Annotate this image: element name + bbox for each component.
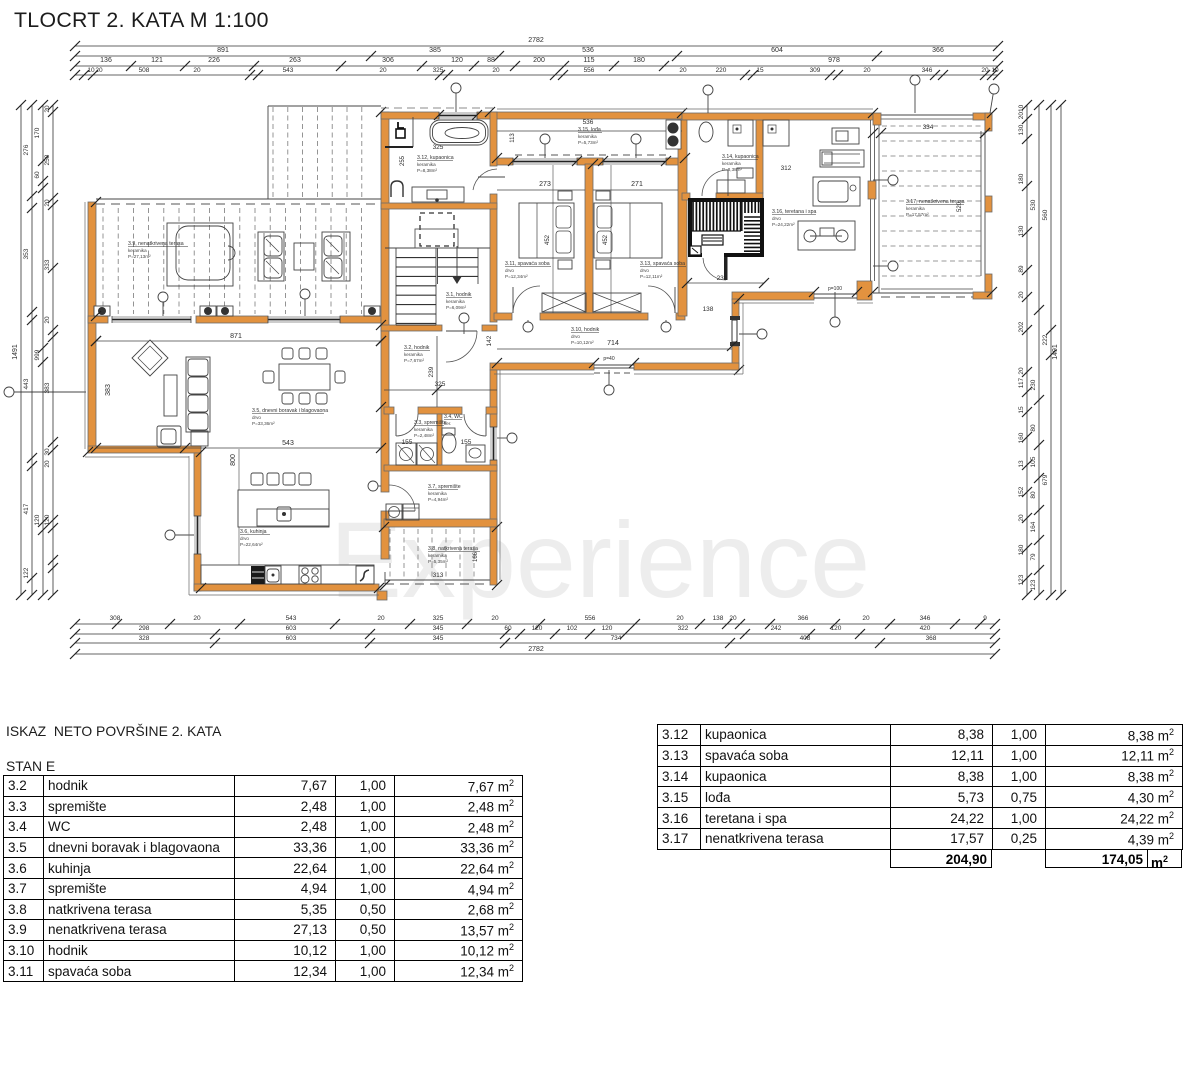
svg-text:drvo: drvo <box>640 268 649 273</box>
svg-text:222: 222 <box>1042 334 1049 345</box>
svg-text:P=4,94m²: P=4,94m² <box>428 497 449 502</box>
svg-text:543: 543 <box>283 67 294 74</box>
svg-text:383: 383 <box>105 384 112 396</box>
svg-text:130: 130 <box>1018 225 1025 236</box>
svg-text:353: 353 <box>23 248 30 259</box>
svg-text:271: 271 <box>631 181 643 188</box>
svg-text:239: 239 <box>428 366 435 377</box>
svg-text:3.4, WC: 3.4, WC <box>444 414 463 420</box>
svg-text:P=17,57m²: P=17,57m² <box>906 212 929 217</box>
svg-text:309: 309 <box>810 67 821 74</box>
svg-text:115: 115 <box>583 57 594 64</box>
svg-text:P=2,48m²: P=2,48m² <box>414 433 435 438</box>
svg-text:999: 999 <box>34 349 41 360</box>
svg-text:679: 679 <box>1042 474 1049 485</box>
svg-text:P=6,09m²: P=6,09m² <box>446 305 467 310</box>
svg-text:1491: 1491 <box>12 344 19 360</box>
svg-text:20: 20 <box>1018 514 1025 522</box>
svg-text:20: 20 <box>491 615 499 622</box>
svg-text:89: 89 <box>1018 265 1025 273</box>
svg-text:142: 142 <box>486 335 493 346</box>
svg-text:79: 79 <box>1030 553 1037 561</box>
svg-text:155: 155 <box>402 439 413 446</box>
svg-text:325: 325 <box>433 615 444 622</box>
svg-text:180: 180 <box>1018 173 1025 184</box>
svg-text:152: 152 <box>1018 486 1025 497</box>
svg-text:202: 202 <box>1018 321 1025 332</box>
svg-text:325: 325 <box>435 381 446 388</box>
svg-text:3.8, natkrivena terasa: 3.8, natkrivena terasa <box>428 546 478 552</box>
svg-text:123: 123 <box>1018 574 1025 585</box>
svg-text:20: 20 <box>193 67 201 74</box>
svg-text:166: 166 <box>473 551 479 562</box>
svg-text:604: 604 <box>771 47 783 54</box>
svg-text:P=33,36m²: P=33,36m² <box>252 421 275 426</box>
svg-text:273: 273 <box>539 181 551 188</box>
svg-text:3.10, hodnik: 3.10, hodnik <box>571 327 600 333</box>
svg-text:800: 800 <box>230 454 237 466</box>
svg-text:20: 20 <box>1018 367 1025 375</box>
svg-text:536: 536 <box>582 47 594 54</box>
svg-text:drvo: drvo <box>252 415 261 420</box>
svg-text:121: 121 <box>151 57 163 64</box>
svg-text:383: 383 <box>44 382 51 393</box>
svg-text:p=40: p=40 <box>603 356 614 362</box>
svg-text:328: 328 <box>139 635 150 642</box>
svg-text:20: 20 <box>862 615 870 622</box>
svg-text:366: 366 <box>932 47 944 54</box>
svg-text:452: 452 <box>603 234 609 245</box>
svg-text:220: 220 <box>716 67 727 74</box>
svg-text:200: 200 <box>533 57 545 64</box>
svg-text:105: 105 <box>1030 456 1037 467</box>
svg-text:20: 20 <box>44 105 51 113</box>
svg-text:276: 276 <box>23 144 30 155</box>
svg-text:322: 322 <box>678 625 689 632</box>
svg-text:122: 122 <box>23 567 30 578</box>
svg-text:123: 123 <box>1030 579 1037 590</box>
svg-text:P=5,35m²: P=5,35m² <box>428 559 449 564</box>
svg-text:226: 226 <box>208 57 220 64</box>
svg-text:417: 417 <box>23 503 30 514</box>
svg-text:603: 603 <box>286 635 297 642</box>
svg-text:113: 113 <box>510 133 516 143</box>
svg-text:180: 180 <box>1018 544 1025 555</box>
svg-text:20: 20 <box>377 615 385 622</box>
svg-text:306: 306 <box>382 57 394 64</box>
svg-text:120: 120 <box>34 514 41 525</box>
svg-text:3.2, hodnik: 3.2, hodnik <box>404 345 430 351</box>
svg-text:10: 10 <box>991 67 999 74</box>
svg-text:346: 346 <box>920 615 931 622</box>
svg-text:3.6, kuhinja: 3.6, kuhinja <box>240 529 267 535</box>
svg-text:P=5,73m²: P=5,73m² <box>578 140 599 145</box>
svg-text:drvo: drvo <box>571 334 580 339</box>
svg-text:80: 80 <box>1030 424 1037 432</box>
svg-text:230: 230 <box>1030 379 1037 390</box>
svg-text:560: 560 <box>1042 209 1049 220</box>
svg-text:Experience: Experience <box>330 499 870 620</box>
svg-text:325: 325 <box>433 67 444 74</box>
svg-text:drvo: drvo <box>505 268 514 273</box>
svg-text:3.17, nenatkrivena terasa: 3.17, nenatkrivena terasa <box>906 199 965 205</box>
svg-text:120: 120 <box>451 57 463 64</box>
svg-text:drvo: drvo <box>772 216 781 221</box>
svg-text:452: 452 <box>545 234 551 245</box>
svg-text:3.12, kupaonica: 3.12, kupaonica <box>417 155 454 161</box>
svg-text:P=7,67m²: P=7,67m² <box>404 358 425 363</box>
svg-text:1491: 1491 <box>1052 344 1059 360</box>
svg-text:60: 60 <box>34 171 41 179</box>
svg-text:ker.: ker. <box>444 421 451 426</box>
svg-text:420: 420 <box>920 625 931 632</box>
svg-text:3.15, lođa: 3.15, lođa <box>578 127 601 133</box>
svg-text:556: 556 <box>585 615 596 622</box>
svg-text:3.14, kupaonica: 3.14, kupaonica <box>722 154 759 160</box>
svg-text:keramika: keramika <box>722 161 741 166</box>
svg-text:keramika: keramika <box>128 248 147 253</box>
svg-text:543: 543 <box>282 440 294 447</box>
svg-text:P=27,13m²: P=27,13m² <box>128 254 151 259</box>
svg-text:136: 136 <box>100 57 112 64</box>
svg-text:978: 978 <box>828 57 840 64</box>
svg-text:keramika: keramika <box>417 162 436 167</box>
svg-text:298: 298 <box>139 625 150 632</box>
svg-text:255: 255 <box>400 155 406 166</box>
svg-text:871: 871 <box>230 333 242 340</box>
svg-text:556: 556 <box>584 67 595 74</box>
svg-text:drvo: drvo <box>240 536 249 541</box>
svg-text:180: 180 <box>633 57 645 64</box>
svg-text:3.7, spremište: 3.7, spremište <box>428 484 461 490</box>
svg-text:164: 164 <box>1030 521 1037 532</box>
svg-text:530: 530 <box>1030 199 1037 210</box>
svg-text:P=12,34m²: P=12,34m² <box>505 274 528 279</box>
svg-text:603: 603 <box>286 625 297 632</box>
svg-text:20: 20 <box>981 67 989 74</box>
svg-text:334: 334 <box>923 124 934 131</box>
svg-text:15: 15 <box>1018 406 1025 414</box>
svg-text:385: 385 <box>429 47 441 54</box>
svg-text:keramika: keramika <box>404 352 423 357</box>
svg-text:408: 408 <box>800 635 811 642</box>
svg-text:2782: 2782 <box>528 646 544 653</box>
svg-text:242: 242 <box>771 625 782 632</box>
svg-text:120: 120 <box>44 514 51 525</box>
svg-text:263: 263 <box>289 57 301 64</box>
svg-text:P=8,38m²: P=8,38m² <box>417 168 438 173</box>
svg-text:443: 443 <box>23 378 30 389</box>
svg-text:P=24,22m²: P=24,22m² <box>772 222 795 227</box>
svg-text:308: 308 <box>110 615 121 622</box>
svg-text:9: 9 <box>983 615 987 622</box>
svg-text:312: 312 <box>781 165 792 172</box>
svg-text:313: 313 <box>433 572 444 579</box>
svg-text:20: 20 <box>729 615 737 622</box>
svg-text:120: 120 <box>831 625 842 632</box>
svg-text:20: 20 <box>95 67 103 74</box>
svg-text:10: 10 <box>87 67 95 74</box>
svg-text:3.1, hodnik: 3.1, hodnik <box>446 292 472 298</box>
svg-text:P=22,64m²: P=22,64m² <box>240 542 263 547</box>
svg-text:333: 333 <box>44 259 51 270</box>
svg-text:160: 160 <box>1018 432 1025 443</box>
svg-text:170: 170 <box>34 127 41 138</box>
svg-text:120: 120 <box>532 625 543 632</box>
svg-text:3.9, nenatkrivena terasa: 3.9, nenatkrivena terasa <box>128 241 184 247</box>
svg-text:130: 130 <box>1018 124 1025 135</box>
svg-text:60: 60 <box>504 625 512 632</box>
svg-text:20: 20 <box>379 67 387 74</box>
svg-text:508: 508 <box>139 67 150 74</box>
svg-text:346: 346 <box>922 67 933 74</box>
svg-text:keramika: keramika <box>906 206 925 211</box>
svg-text:keramika: keramika <box>428 491 447 496</box>
svg-text:714: 714 <box>607 340 619 347</box>
svg-text:3.16, teretana i spa: 3.16, teretana i spa <box>772 209 817 215</box>
svg-text:88: 88 <box>487 57 495 64</box>
svg-text:138: 138 <box>703 306 714 313</box>
svg-text:3.5, dnevni boravak i blagovao: 3.5, dnevni boravak i blagovaona <box>252 408 328 414</box>
svg-text:3.3, spremište: 3.3, spremište <box>414 420 447 426</box>
svg-text:keramika: keramika <box>446 299 465 304</box>
svg-text:20: 20 <box>44 316 51 324</box>
svg-text:p=100: p=100 <box>828 286 842 292</box>
svg-text:20: 20 <box>492 67 500 74</box>
svg-text:368: 368 <box>926 635 937 642</box>
svg-text:keramika: keramika <box>414 427 433 432</box>
svg-text:345: 345 <box>433 625 444 632</box>
svg-text:13: 13 <box>1018 460 1025 468</box>
svg-text:117: 117 <box>1018 377 1025 388</box>
svg-text:102: 102 <box>567 625 578 632</box>
svg-text:2010: 2010 <box>1018 104 1025 119</box>
svg-text:2782: 2782 <box>528 37 544 44</box>
svg-text:80: 80 <box>1030 491 1037 499</box>
svg-text:P=12,11m²: P=12,11m² <box>640 274 663 279</box>
svg-text:734: 734 <box>611 635 622 642</box>
svg-text:20: 20 <box>863 67 871 74</box>
svg-text:keramika: keramika <box>428 553 447 558</box>
svg-text:20: 20 <box>44 460 51 468</box>
svg-text:120: 120 <box>602 625 613 632</box>
svg-text:258: 258 <box>44 154 51 165</box>
svg-text:30: 30 <box>44 448 51 456</box>
svg-text:keramika: keramika <box>578 134 597 139</box>
svg-text:536: 536 <box>583 119 594 126</box>
svg-text:20: 20 <box>679 67 687 74</box>
svg-text:P=10,12m²: P=10,12m² <box>571 340 594 345</box>
svg-text:891: 891 <box>217 47 229 54</box>
svg-text:366: 366 <box>798 615 809 622</box>
svg-text:3.13, spavaća soba: 3.13, spavaća soba <box>640 261 685 267</box>
svg-text:20: 20 <box>44 199 51 207</box>
svg-text:20: 20 <box>676 615 684 622</box>
svg-text:543: 543 <box>286 615 297 622</box>
svg-text:138: 138 <box>713 615 724 622</box>
svg-text:15: 15 <box>756 67 764 74</box>
svg-text:345: 345 <box>433 635 444 642</box>
svg-text:20: 20 <box>1018 291 1025 299</box>
svg-text:20: 20 <box>193 615 201 622</box>
svg-text:3.11, spavaća soba: 3.11, spavaća soba <box>505 261 550 267</box>
